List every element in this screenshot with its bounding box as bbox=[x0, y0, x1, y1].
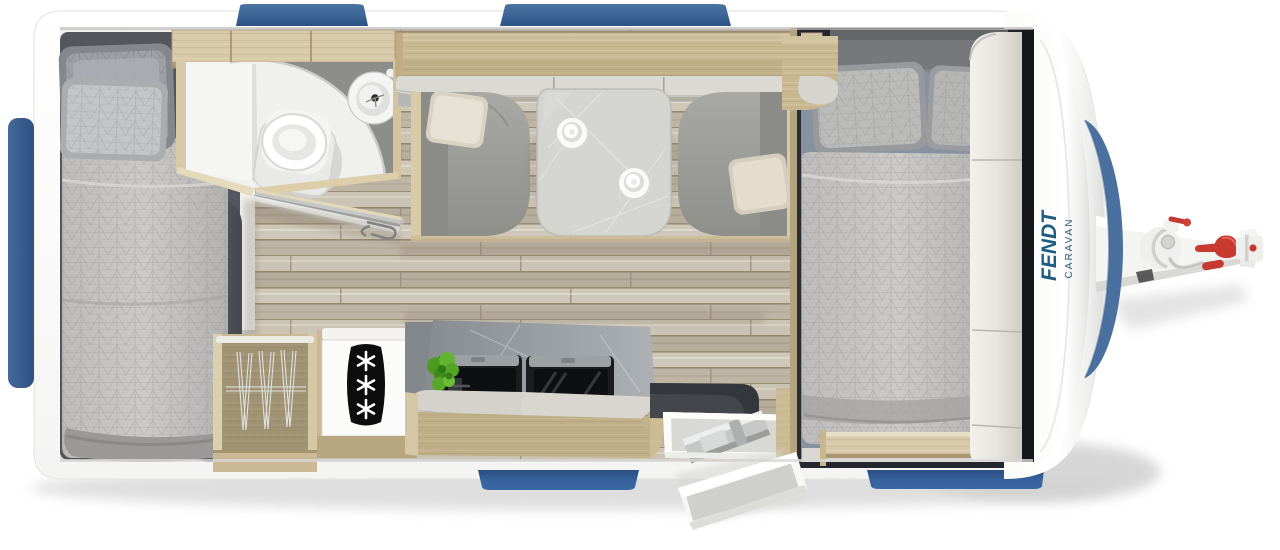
svg-text:FENDT: FENDT bbox=[1038, 209, 1061, 281]
svg-text:CARAVAN: CARAVAN bbox=[1064, 218, 1075, 279]
